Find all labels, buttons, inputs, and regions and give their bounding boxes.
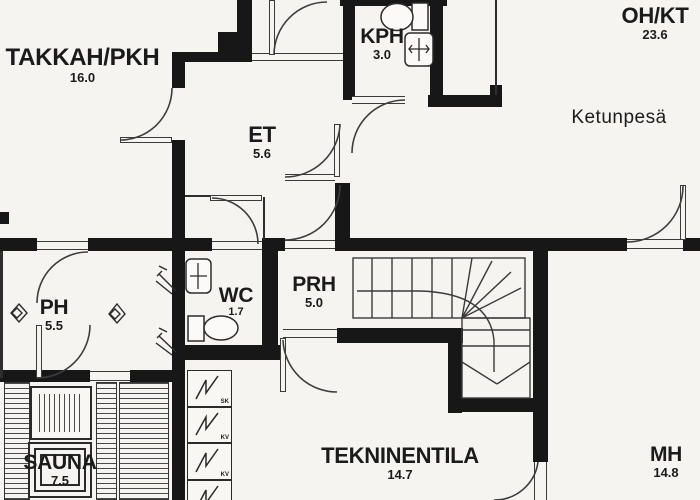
room-area: 5.5	[28, 319, 80, 332]
room-label-ph: PH 5.5	[28, 297, 80, 333]
area-label-ketunpesa: Ketunpesä	[560, 108, 678, 127]
room-area: 7.5	[10, 474, 110, 487]
shower-icon	[156, 328, 176, 355]
equipment-box-kv: KV	[187, 443, 232, 480]
door-arc	[285, 124, 340, 177]
equipment-label: KV	[221, 435, 229, 441]
room-area: 14.7	[310, 468, 490, 481]
floor-plan: SK KV KV KV TAKKAH/PKH 16.0 ET 5.6 KPH 3…	[0, 0, 700, 500]
room-name: OH/KT	[615, 5, 695, 27]
door-arc	[627, 186, 683, 242]
room-label-wc: WC 1.7	[210, 285, 262, 319]
staircase	[353, 258, 530, 398]
room-area: 1.7	[210, 307, 262, 318]
electric-zigzag-icon	[188, 481, 231, 500]
room-name: TAKKAH/PKH	[0, 46, 165, 70]
room-area: 16.0	[0, 71, 165, 84]
room-name: ET	[232, 124, 292, 146]
room-name: WC	[210, 285, 262, 306]
toilet-tank-icon	[188, 316, 204, 341]
room-label-takkah: TAKKAH/PKH 16.0	[0, 46, 165, 85]
room-name: SAUNA	[10, 452, 110, 473]
room-label-ohkt: OH/KT 23.6	[615, 5, 695, 42]
shower-icon	[156, 266, 176, 294]
stair-walk-line	[357, 291, 494, 372]
room-area: 23.6	[615, 28, 695, 41]
area-name: Ketunpesä	[571, 107, 666, 128]
room-name: MH	[635, 444, 697, 465]
room-name: PRH	[288, 274, 340, 295]
room-label-kph: KPH 3.0	[352, 26, 412, 62]
room-label-tekninentila: TEKNINENTILA 14.7	[310, 445, 490, 482]
sauna-heater-icon	[30, 386, 92, 440]
equipment-label: KV	[221, 472, 229, 478]
toilet-bowl-icon	[204, 316, 238, 340]
room-name: KPH	[352, 26, 412, 47]
room-area: 14.8	[635, 466, 697, 479]
door-arc	[283, 340, 337, 392]
room-area: 5.6	[232, 147, 292, 160]
equipment-box-kv: KV	[187, 407, 232, 443]
toilet-tank-icon	[412, 3, 428, 30]
door-arc	[352, 100, 405, 153]
door-arc	[285, 185, 340, 240]
door-arc	[212, 198, 258, 244]
room-area: 5.0	[288, 296, 340, 309]
equipment-label: SK	[221, 399, 229, 405]
door-arc	[274, 2, 327, 55]
room-label-et: ET 5.6	[232, 124, 292, 161]
room-name: TEKNINENTILA	[310, 445, 490, 467]
door-arc	[120, 88, 172, 140]
room-label-sauna: SAUNA 7.5	[10, 452, 110, 488]
equipment-box-sk: SK	[187, 370, 232, 407]
equipment-box-kv: KV	[187, 480, 232, 500]
room-name: PH	[28, 297, 80, 318]
room-label-prh: PRH 5.0	[288, 274, 340, 310]
room-area: 3.0	[352, 48, 412, 61]
floor-drain-icon	[11, 304, 27, 322]
door-arc	[494, 462, 538, 500]
room-label-mh: MH 14.8	[635, 444, 697, 480]
